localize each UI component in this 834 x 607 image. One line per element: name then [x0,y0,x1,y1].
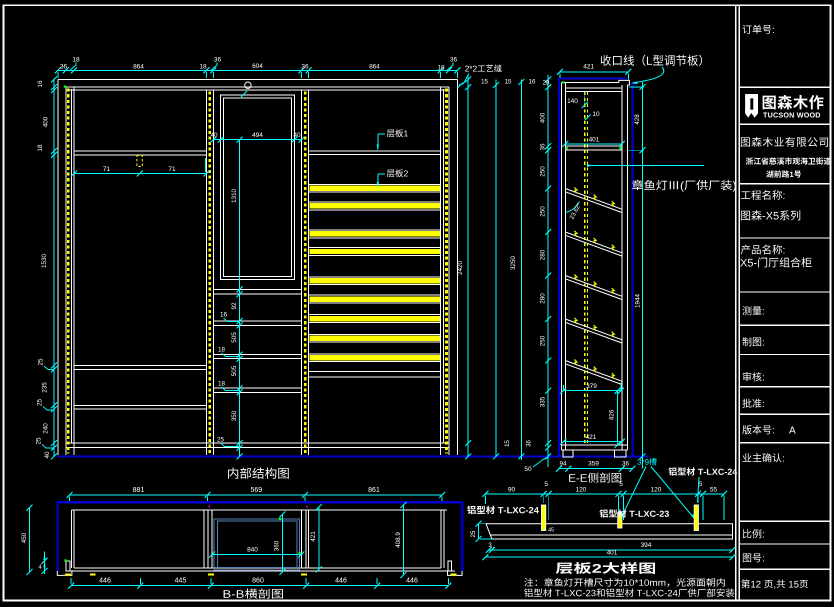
svg-text:604: 604 [252,63,263,70]
svg-text:505: 505 [231,332,238,343]
svg-text:421: 421 [310,531,317,542]
svg-text:25: 25 [37,399,44,407]
svg-text:400: 400 [43,116,50,127]
svg-text:1310: 1310 [231,189,238,204]
svg-text:50: 50 [524,466,532,473]
svg-text:36: 36 [526,440,533,447]
svg-text:16: 16 [220,312,228,319]
svg-text:394: 394 [641,542,652,549]
svg-text:18: 18 [72,57,80,64]
svg-text:446: 446 [335,578,347,585]
svg-text:18: 18 [437,64,445,71]
svg-text:36: 36 [622,461,630,468]
svg-text:40: 40 [210,132,218,139]
svg-text:36: 36 [60,63,68,70]
svg-text:445: 445 [175,578,187,585]
svg-text:494: 494 [252,132,263,139]
svg-text:120: 120 [651,487,662,494]
svg-text:864: 864 [133,63,144,70]
svg-text:10: 10 [592,111,600,118]
svg-text:25: 25 [36,437,43,445]
svg-text:36: 36 [301,63,309,70]
svg-text:335: 335 [540,396,547,407]
svg-text:450: 450 [21,532,28,543]
svg-text:36: 36 [540,143,547,151]
svg-text:860: 860 [252,578,264,585]
svg-text:280: 280 [540,293,547,304]
svg-text:94: 94 [559,461,567,468]
svg-text:5: 5 [619,481,623,488]
svg-text:359: 359 [588,460,599,467]
svg-text:92: 92 [231,302,238,310]
svg-text:55: 55 [710,487,718,494]
svg-text:401: 401 [589,136,600,143]
svg-text:18: 18 [218,381,226,388]
svg-text:120: 120 [576,487,587,494]
svg-text:140: 140 [567,98,578,105]
svg-text:421: 421 [583,64,594,71]
svg-text:16: 16 [37,80,44,88]
svg-text:280: 280 [540,249,547,260]
svg-text:235: 235 [42,382,49,393]
svg-text:426: 426 [609,409,616,420]
svg-text:TUCSON WOOD: TUCSON WOOD [763,111,821,120]
svg-text:379: 379 [586,383,597,390]
svg-text:28: 28 [543,79,550,86]
svg-text:36: 36 [214,57,222,64]
svg-text:840: 840 [247,547,258,554]
svg-text:250: 250 [540,335,547,346]
svg-text:401: 401 [607,550,618,557]
svg-text:90: 90 [508,487,516,494]
svg-text:400: 400 [540,112,547,123]
svg-text:861: 861 [368,487,380,494]
svg-text:3250: 3250 [510,256,517,271]
svg-text:240: 240 [43,423,50,434]
svg-text:864: 864 [369,63,380,70]
svg-text:45: 45 [548,528,554,534]
svg-text:25: 25 [38,358,45,366]
svg-text:71: 71 [103,166,111,173]
svg-text:18: 18 [218,347,226,354]
svg-text:446: 446 [99,578,111,585]
svg-text:5: 5 [544,481,548,488]
svg-text:25: 25 [471,530,477,537]
svg-text:446: 446 [406,578,418,585]
svg-text:4: 4 [38,565,41,571]
svg-text:36: 36 [450,57,458,64]
svg-text:5: 5 [699,481,703,488]
svg-text:40: 40 [44,451,51,459]
svg-text:18: 18 [37,144,44,152]
svg-text:1530: 1530 [41,254,48,269]
svg-text:A: A [789,426,796,437]
svg-text:250: 250 [540,166,547,177]
svg-text:15: 15 [481,79,488,86]
svg-text:15: 15 [504,440,511,447]
svg-text:360: 360 [274,540,281,551]
svg-text:250: 250 [540,206,547,217]
svg-text:18: 18 [199,63,207,70]
svg-text:2420: 2420 [457,261,464,276]
svg-text:71: 71 [168,166,176,173]
svg-text:881: 881 [133,487,145,494]
svg-text:408.9: 408.9 [395,532,402,548]
svg-text:505: 505 [231,365,238,376]
svg-text:25: 25 [217,437,225,444]
svg-text:421: 421 [586,434,597,441]
svg-text:1944: 1944 [634,294,641,309]
svg-text:16: 16 [529,78,536,85]
svg-text:40: 40 [293,132,301,139]
svg-text:428: 428 [634,114,641,125]
svg-text:15: 15 [505,79,512,86]
svg-text:350: 350 [231,410,238,421]
svg-text:569: 569 [250,487,262,494]
